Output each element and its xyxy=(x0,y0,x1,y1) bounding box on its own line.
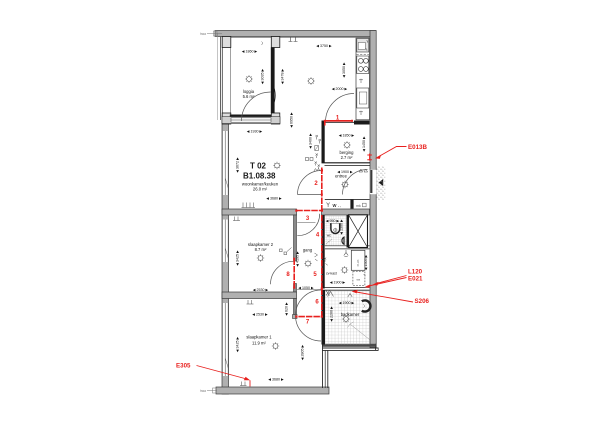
svg-text:◀ 3425 ▶: ◀ 3425 ▶ xyxy=(236,249,240,266)
svg-text:◀ 1850 ▶: ◀ 1850 ▶ xyxy=(339,134,356,138)
svg-text:2.7 m²: 2.7 m² xyxy=(341,155,353,160)
svg-text:◀ 3035 ▶: ◀ 3035 ▶ xyxy=(261,68,265,85)
svg-text:cv-kast: cv-kast xyxy=(326,272,337,276)
svg-text:◀ 3680 ▶: ◀ 3680 ▶ xyxy=(266,197,283,201)
svg-text:wc: wc xyxy=(327,234,331,238)
svg-text:◀ 950 ▶: ◀ 950 ▶ xyxy=(326,219,341,223)
svg-text:8.7 m²: 8.7 m² xyxy=(255,247,267,252)
svg-text:◀ 1860 ▶: ◀ 1860 ▶ xyxy=(242,50,259,54)
svg-text:11.9 m²: 11.9 m² xyxy=(252,341,266,346)
svg-text:◀ 1300 ▶: ◀ 1300 ▶ xyxy=(340,218,344,235)
svg-text:◀ 3478 ▶: ◀ 3478 ▶ xyxy=(281,68,285,85)
svg-text:◀ 1900 ▶: ◀ 1900 ▶ xyxy=(330,281,347,285)
svg-text:entree: entree xyxy=(335,174,348,179)
svg-text:◀ 2200 ▶: ◀ 2200 ▶ xyxy=(330,305,334,322)
svg-text:◀ 6950 ▶: ◀ 6950 ▶ xyxy=(290,111,294,128)
svg-text:◀ 3750 ▶: ◀ 3750 ▶ xyxy=(316,44,333,48)
svg-text:◀ 1050 ▶: ◀ 1050 ▶ xyxy=(298,286,315,290)
svg-text:◀ 3672 ▶: ◀ 3672 ▶ xyxy=(236,156,240,173)
svg-text:5.6 m²: 5.6 m² xyxy=(243,94,255,99)
svg-text:wa: wa xyxy=(357,278,361,282)
svg-text:slaapkamer 1: slaapkamer 1 xyxy=(246,335,272,340)
svg-text:◀ 620 ▶: ◀ 620 ▶ xyxy=(285,301,289,316)
svg-text:◀ 1900 ▶: ◀ 1900 ▶ xyxy=(339,301,356,305)
svg-text:E305: E305 xyxy=(176,363,191,370)
svg-text:◀ 4195 ▶: ◀ 4195 ▶ xyxy=(296,250,300,267)
svg-text:S206: S206 xyxy=(415,298,430,305)
svg-text:W: W xyxy=(333,203,337,208)
svg-text:◀ 2000 ▶: ◀ 2000 ▶ xyxy=(332,87,349,91)
svg-text:◀ 2530 ▶: ◀ 2530 ▶ xyxy=(253,288,270,292)
svg-text:◀ 3425 ▶: ◀ 3425 ▶ xyxy=(236,336,240,353)
svg-text:26.0 m²: 26.0 m² xyxy=(253,187,268,192)
svg-text:◀ 1450 ▶: ◀ 1450 ▶ xyxy=(362,135,366,152)
svg-text:L120: L120 xyxy=(408,269,423,276)
svg-text:T 02: T 02 xyxy=(250,162,267,171)
svg-text:◀ 1505 ▶: ◀ 1505 ▶ xyxy=(364,254,368,271)
svg-text:E013B: E013B xyxy=(408,144,427,151)
svg-text:PLUS: PLUS xyxy=(356,259,360,266)
svg-text:◀ 3400 ▶: ◀ 3400 ▶ xyxy=(309,132,313,149)
svg-text:◀ 3680 ▶: ◀ 3680 ▶ xyxy=(268,378,285,382)
svg-text:◀ 1900 ▶: ◀ 1900 ▶ xyxy=(337,170,354,174)
svg-text:◀ 1930 ▶: ◀ 1930 ▶ xyxy=(247,130,264,134)
svg-text:E021: E021 xyxy=(408,276,423,283)
svg-text:◀ 3050 ▶: ◀ 3050 ▶ xyxy=(342,61,346,78)
svg-text:mk: mk xyxy=(356,204,361,208)
svg-text:B1.08.38: B1.08.38 xyxy=(243,172,276,181)
svg-text:◀ 2805 ▶: ◀ 2805 ▶ xyxy=(301,344,305,361)
svg-text:hwa: hwa xyxy=(200,32,206,36)
svg-text:◀ 2530 ▶: ◀ 2530 ▶ xyxy=(252,313,269,317)
svg-text:gang: gang xyxy=(303,248,313,253)
svg-text:hwa: hwa xyxy=(200,389,206,393)
